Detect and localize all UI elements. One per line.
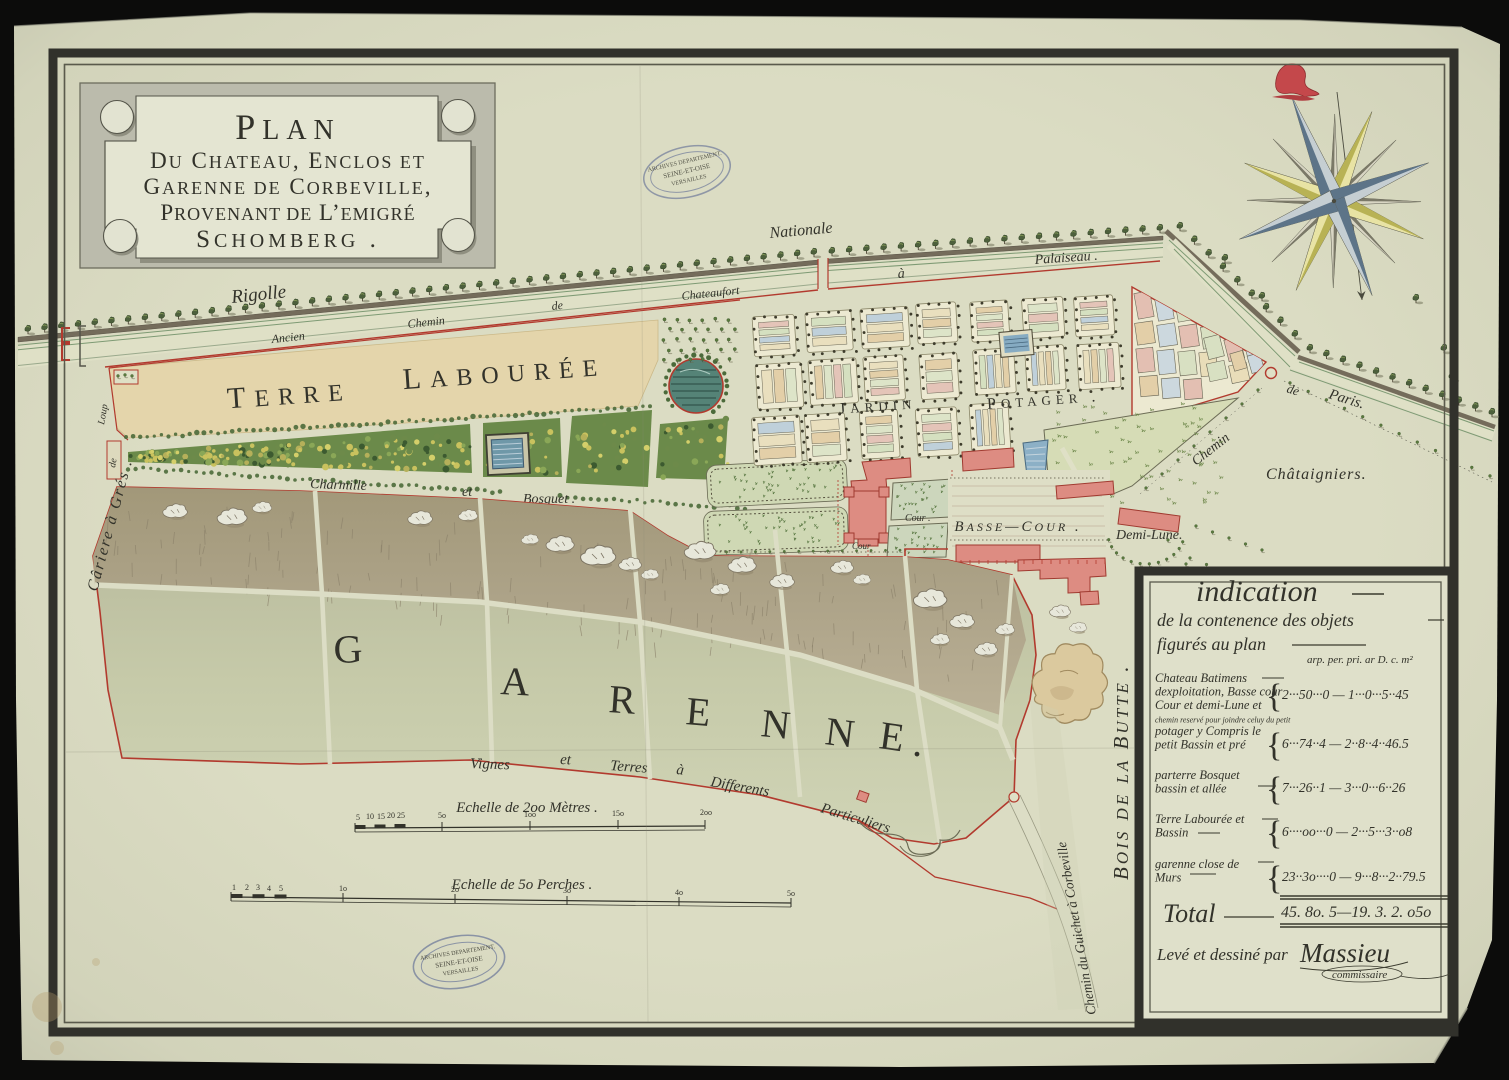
svg-text:10: 10 — [366, 812, 374, 821]
svg-text:Total: Total — [1163, 899, 1216, 928]
svg-text:2oo: 2oo — [700, 808, 712, 817]
svg-text:garenne close de: garenne close de — [1155, 857, 1240, 871]
svg-text:N: N — [759, 700, 792, 748]
svg-text:Murs: Murs — [1154, 871, 1182, 885]
svg-text:2o: 2o — [451, 885, 459, 894]
svg-text:7···26··1 — 3···0···6··26: 7···26··1 — 3···0···6··26 — [1282, 780, 1406, 795]
svg-text:BASSE—COUR .: BASSE—COUR . — [954, 519, 1081, 535]
svg-text:GARENNE DE CORBEVILLE,: GARENNE DE CORBEVILLE, — [144, 174, 433, 199]
svg-text:5: 5 — [356, 813, 360, 822]
svg-text:de: de — [551, 298, 564, 313]
svg-text:R: R — [607, 676, 637, 723]
svg-text:de la contenence des objets: de la contenence des objets — [1157, 610, 1354, 630]
svg-text:Terre Labourée et: Terre Labourée et — [1155, 812, 1245, 826]
svg-text:{: { — [1266, 815, 1282, 852]
svg-text:arp. per. pri. ar D. c. m²: arp. per. pri. ar D. c. m² — [1307, 654, 1413, 666]
svg-text:5: 5 — [279, 884, 283, 893]
svg-text:15o: 15o — [612, 809, 624, 818]
svg-text:Chateau Batimens: Chateau Batimens — [1155, 671, 1247, 685]
svg-text:3: 3 — [256, 883, 260, 892]
svg-text:Cour .: Cour . — [905, 513, 931, 524]
svg-text:et: et — [560, 752, 572, 768]
svg-text:1: 1 — [232, 883, 236, 892]
svg-text:{: { — [1266, 727, 1282, 764]
svg-text:6···74··4 — 2··8··4··46.5: 6···74··4 — 2··8··4··46.5 — [1282, 736, 1409, 751]
svg-text:{: { — [1266, 678, 1282, 715]
svg-text:Châtaigniers.: Châtaigniers. — [1266, 466, 1367, 483]
svg-text:SCHOMBERG .: SCHOMBERG . — [196, 226, 380, 253]
svg-text:A: A — [500, 658, 531, 704]
svg-text:20: 20 — [387, 811, 395, 820]
svg-text:bassin et allée: bassin et allée — [1155, 782, 1227, 796]
svg-text:parterre Bosquet: parterre Bosquet — [1154, 768, 1240, 782]
svg-text:à: à — [897, 267, 905, 282]
svg-text:G: G — [333, 626, 363, 672]
svg-text:5o: 5o — [787, 889, 795, 898]
svg-text:PROVENANT DE L’EMIGRÉ: PROVENANT DE L’EMIGRÉ — [160, 200, 415, 225]
svg-text:figurés au plan: figurés au plan — [1157, 634, 1266, 654]
svg-text:potager y Compris le: potager y Compris le — [1154, 724, 1261, 738]
svg-text:45. 8o. 5—19. 3. 2. o5o: 45. 8o. 5—19. 3. 2. o5o — [1281, 904, 1431, 921]
svg-text:23··3o····0 — 9···8···2··79.5: 23··3o····0 — 9···8···2··79.5 — [1282, 869, 1426, 884]
svg-text:2···50···0 — 1···0···5··45: 2···50···0 — 1···0···5··45 — [1282, 687, 1409, 702]
svg-text:Cour et demi-Lune et: Cour et demi-Lune et — [1155, 698, 1262, 712]
svg-text:Vignes: Vignes — [470, 756, 510, 773]
svg-text:E: E — [684, 688, 712, 735]
svg-text:1o: 1o — [339, 884, 347, 893]
svg-text:Levé et dessiné par: Levé et dessiné par — [1156, 945, 1288, 964]
svg-text:4o: 4o — [675, 888, 683, 897]
svg-text:Demi-Lune.: Demi-Lune. — [1115, 528, 1183, 543]
svg-text:petit Bassin et pré: petit Bassin et pré — [1154, 738, 1246, 752]
svg-text:Terres: Terres — [610, 758, 648, 777]
svg-text:{: { — [1266, 860, 1282, 897]
svg-text:{: { — [1266, 771, 1282, 808]
svg-text:Massieu: Massieu — [1299, 938, 1390, 968]
svg-text:4: 4 — [267, 884, 271, 893]
svg-text:BOIS DE LA BUTTE .: BOIS DE LA BUTTE . — [1109, 664, 1133, 880]
svg-text:5o: 5o — [438, 811, 446, 820]
svg-text:15: 15 — [377, 812, 385, 821]
svg-text:Bassin: Bassin — [1155, 826, 1188, 840]
svg-text:25: 25 — [397, 811, 405, 820]
svg-text:.: . — [912, 720, 922, 765]
svg-text:commissaire: commissaire — [1332, 969, 1387, 981]
svg-text:1oo: 1oo — [524, 810, 536, 819]
svg-text:2: 2 — [245, 883, 249, 892]
svg-text:6····oo···0 — 2···5···3··o8: 6····oo···0 — 2···5···3··o8 — [1282, 824, 1412, 839]
svg-text:dexploitation, Basse cour: dexploitation, Basse cour — [1155, 685, 1283, 699]
svg-text:Echelle de 5o Perches .: Echelle de 5o Perches . — [451, 877, 593, 893]
svg-text:DU CHATEAU, ENCLOS ET: DU CHATEAU, ENCLOS ET — [150, 148, 426, 173]
svg-text:indication: indication — [1196, 575, 1318, 608]
svg-text:3o: 3o — [563, 886, 571, 895]
